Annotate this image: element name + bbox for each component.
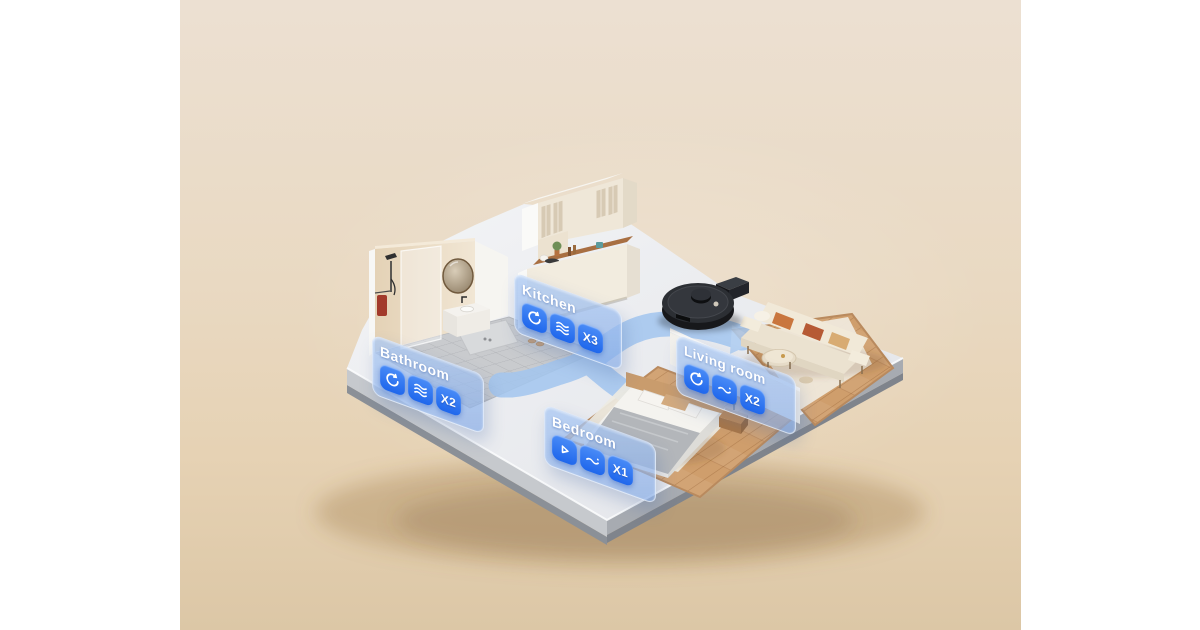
- waves-icon: [408, 373, 433, 407]
- triangle-icon: [552, 433, 577, 467]
- round-mirror: [443, 259, 473, 293]
- camera-sensor: [714, 302, 719, 307]
- waves-icon: [550, 311, 575, 345]
- count-badge: X3: [578, 321, 603, 355]
- count-badge: X1: [608, 453, 633, 487]
- red-towel: [377, 295, 387, 316]
- spin-icon: [684, 362, 709, 396]
- stool: [799, 377, 813, 384]
- spin-icon: [522, 301, 547, 335]
- plant: [553, 242, 562, 251]
- count-badge: X2: [436, 383, 461, 417]
- hero-image: Bathroom X2 Kitchen X3 Living room: [0, 0, 1200, 630]
- right-white-bar: [1021, 0, 1200, 630]
- left-white-bar: [0, 0, 180, 630]
- wave-icon: [580, 443, 605, 477]
- wave-icon: [712, 372, 737, 406]
- teal-box: [596, 242, 603, 248]
- shower-glass: [401, 246, 441, 349]
- count-badge: X2: [740, 382, 765, 416]
- spin-icon: [380, 363, 405, 397]
